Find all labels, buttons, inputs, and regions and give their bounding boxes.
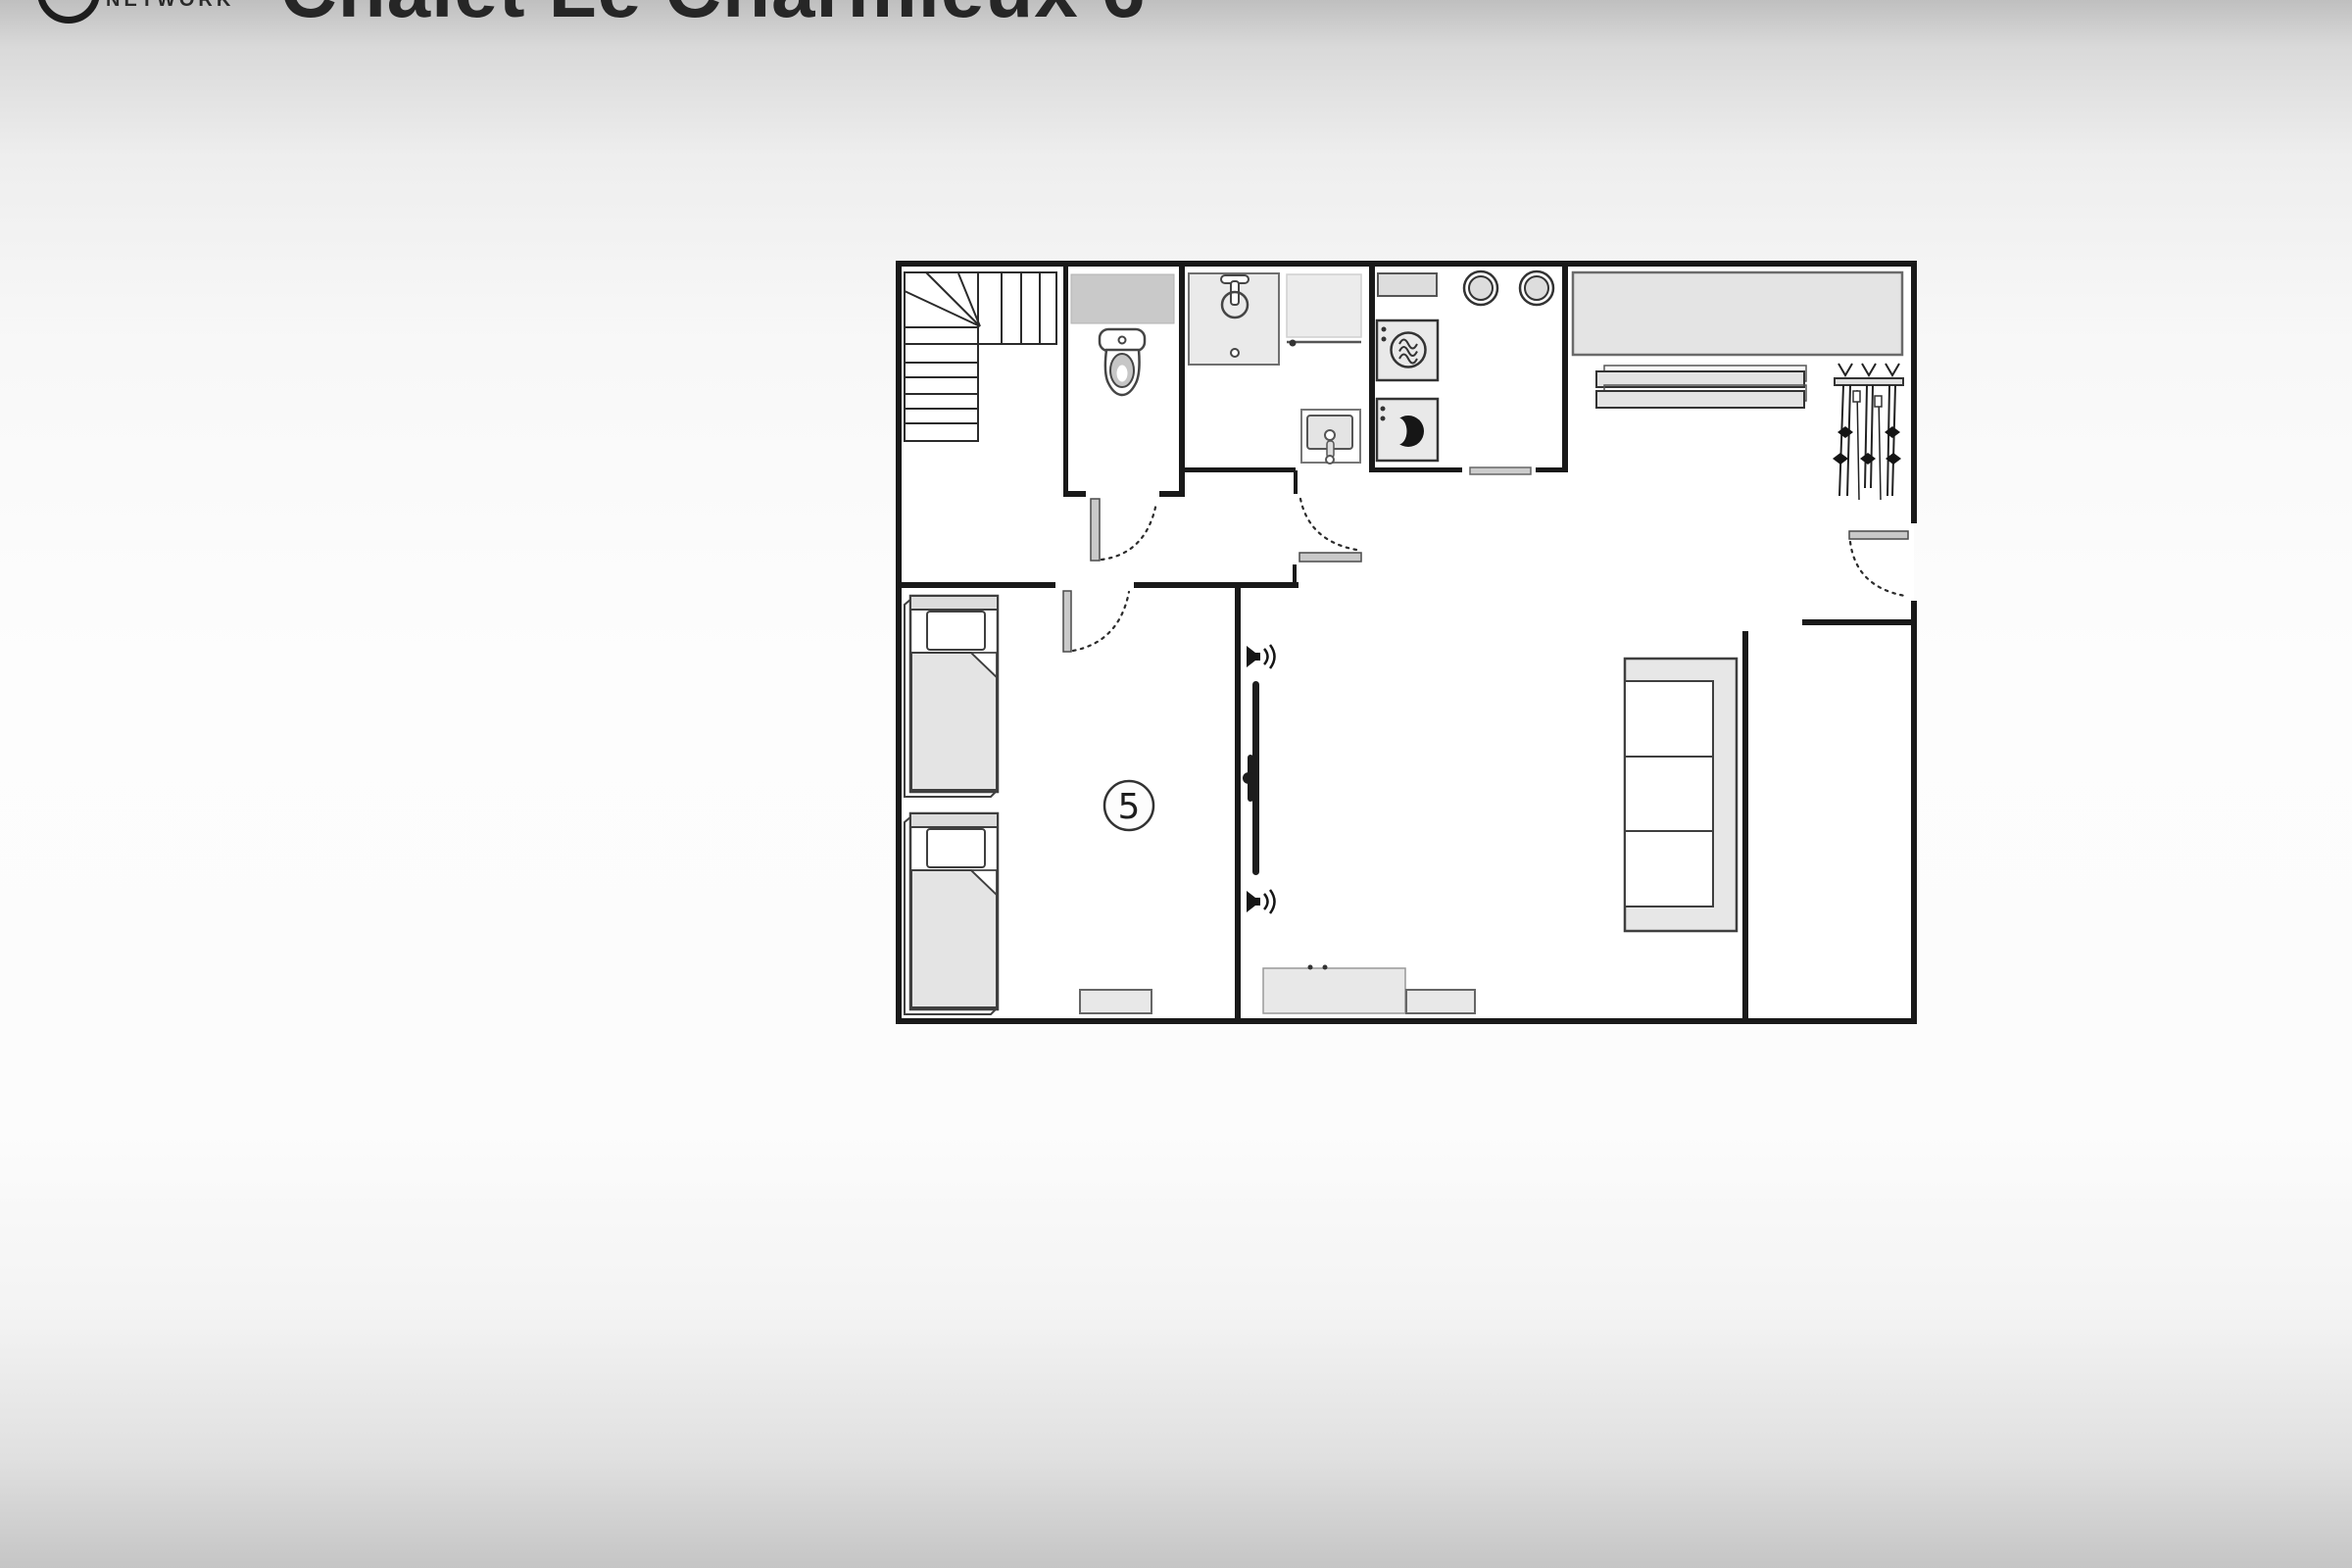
wall-outer-right-lower <box>1911 601 1917 1024</box>
wall-sideroom-top <box>1802 619 1914 625</box>
single-bed-2 <box>905 813 998 1014</box>
wall-kitchen-entry <box>1562 264 1568 471</box>
worktop <box>1378 273 1437 296</box>
floor-plan: 5 <box>0 0 2352 1568</box>
wall-bath-door-jamb <box>1294 470 1298 494</box>
kitchen-threshold <box>1470 467 1531 474</box>
wall-bath-kitchen <box>1369 264 1375 471</box>
washbasin-icon <box>1301 410 1360 464</box>
bedroom-radiator <box>1080 990 1151 1013</box>
wall-bath-bottom <box>1179 467 1296 472</box>
wall-shelf <box>1071 274 1174 323</box>
single-bed-1 <box>905 596 998 797</box>
wardrobe-counter <box>1573 272 1902 355</box>
living-radiator <box>1406 990 1475 1013</box>
washing-machine-icon <box>1377 399 1438 461</box>
wall-wc-bottom-left <box>1063 491 1086 497</box>
wall-outer-top <box>896 261 1917 267</box>
wall-wc-right <box>1179 264 1185 497</box>
wall-corridor-bottom-left <box>896 582 1055 588</box>
wall-kitchen-bottom-right <box>1536 467 1568 472</box>
wall-outer-right-upper <box>1911 261 1917 523</box>
wall-outer-left <box>896 261 902 1024</box>
sideboard <box>1263 965 1405 1014</box>
counter-tap-icon <box>1290 340 1297 347</box>
wall-outer-bottom <box>896 1018 1917 1024</box>
wall-wc-left <box>1063 264 1068 497</box>
wall-wc-bottom-right <box>1159 491 1185 497</box>
sofa-icon <box>1625 659 1737 931</box>
vanity-counter <box>1287 274 1361 337</box>
room-number-label: 5 <box>1118 787 1141 827</box>
wall-kitchen-bottom-left <box>1369 467 1462 472</box>
oven-icon <box>1377 320 1438 380</box>
storage-shelves <box>1596 366 1806 408</box>
room-number-badge: 5 <box>1104 781 1153 830</box>
wall-bedroom-living <box>1235 582 1241 1024</box>
wall-corridor-bottom-right <box>1134 582 1298 588</box>
wall-living-sideroom <box>1742 631 1748 1024</box>
